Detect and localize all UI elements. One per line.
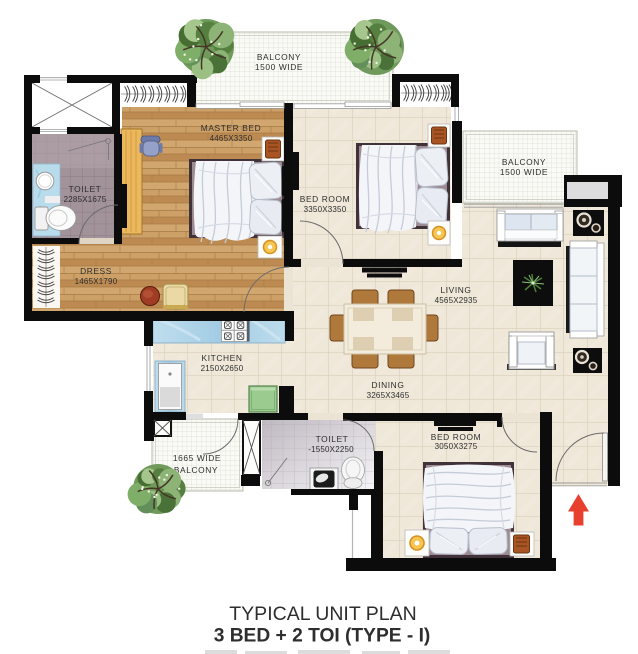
svg-text:MASTER BED: MASTER BED (201, 123, 261, 133)
svg-text:BALCONY: BALCONY (174, 465, 218, 475)
svg-text:DRESS: DRESS (80, 266, 112, 276)
svg-text:DINING: DINING (372, 380, 405, 390)
svg-text:BED ROOM: BED ROOM (431, 432, 481, 442)
svg-text:BED ROOM: BED ROOM (300, 194, 350, 204)
svg-text:-1550X2250: -1550X2250 (308, 445, 354, 454)
svg-text:TOILET: TOILET (69, 184, 102, 194)
svg-text:1465X1790: 1465X1790 (75, 277, 118, 286)
svg-text:1500 WIDE: 1500 WIDE (500, 167, 548, 177)
svg-text:2285X1675: 2285X1675 (64, 195, 107, 204)
svg-text:1665 WIDE: 1665 WIDE (173, 453, 221, 463)
svg-text:4565X2935: 4565X2935 (435, 296, 478, 305)
svg-text:TOILET: TOILET (316, 434, 349, 444)
svg-text:2150X2650: 2150X2650 (201, 364, 244, 373)
svg-text:3050X3275: 3050X3275 (435, 442, 478, 451)
svg-text:BALCONY: BALCONY (257, 52, 301, 62)
svg-text:BALCONY: BALCONY (502, 157, 546, 167)
svg-text:3350X3350: 3350X3350 (304, 205, 347, 214)
svg-text:3265X3465: 3265X3465 (367, 391, 410, 400)
svg-text:1500 WIDE: 1500 WIDE (255, 62, 303, 72)
svg-text:LIVING: LIVING (440, 285, 471, 295)
svg-text:TYPICAL UNIT PLAN: TYPICAL UNIT PLAN (229, 603, 416, 625)
svg-text:4465X3350: 4465X3350 (210, 134, 253, 143)
svg-text:3 BED + 2 TOI (TYPE - I): 3 BED + 2 TOI (TYPE - I) (214, 626, 431, 647)
svg-text:KITCHEN: KITCHEN (202, 353, 243, 363)
